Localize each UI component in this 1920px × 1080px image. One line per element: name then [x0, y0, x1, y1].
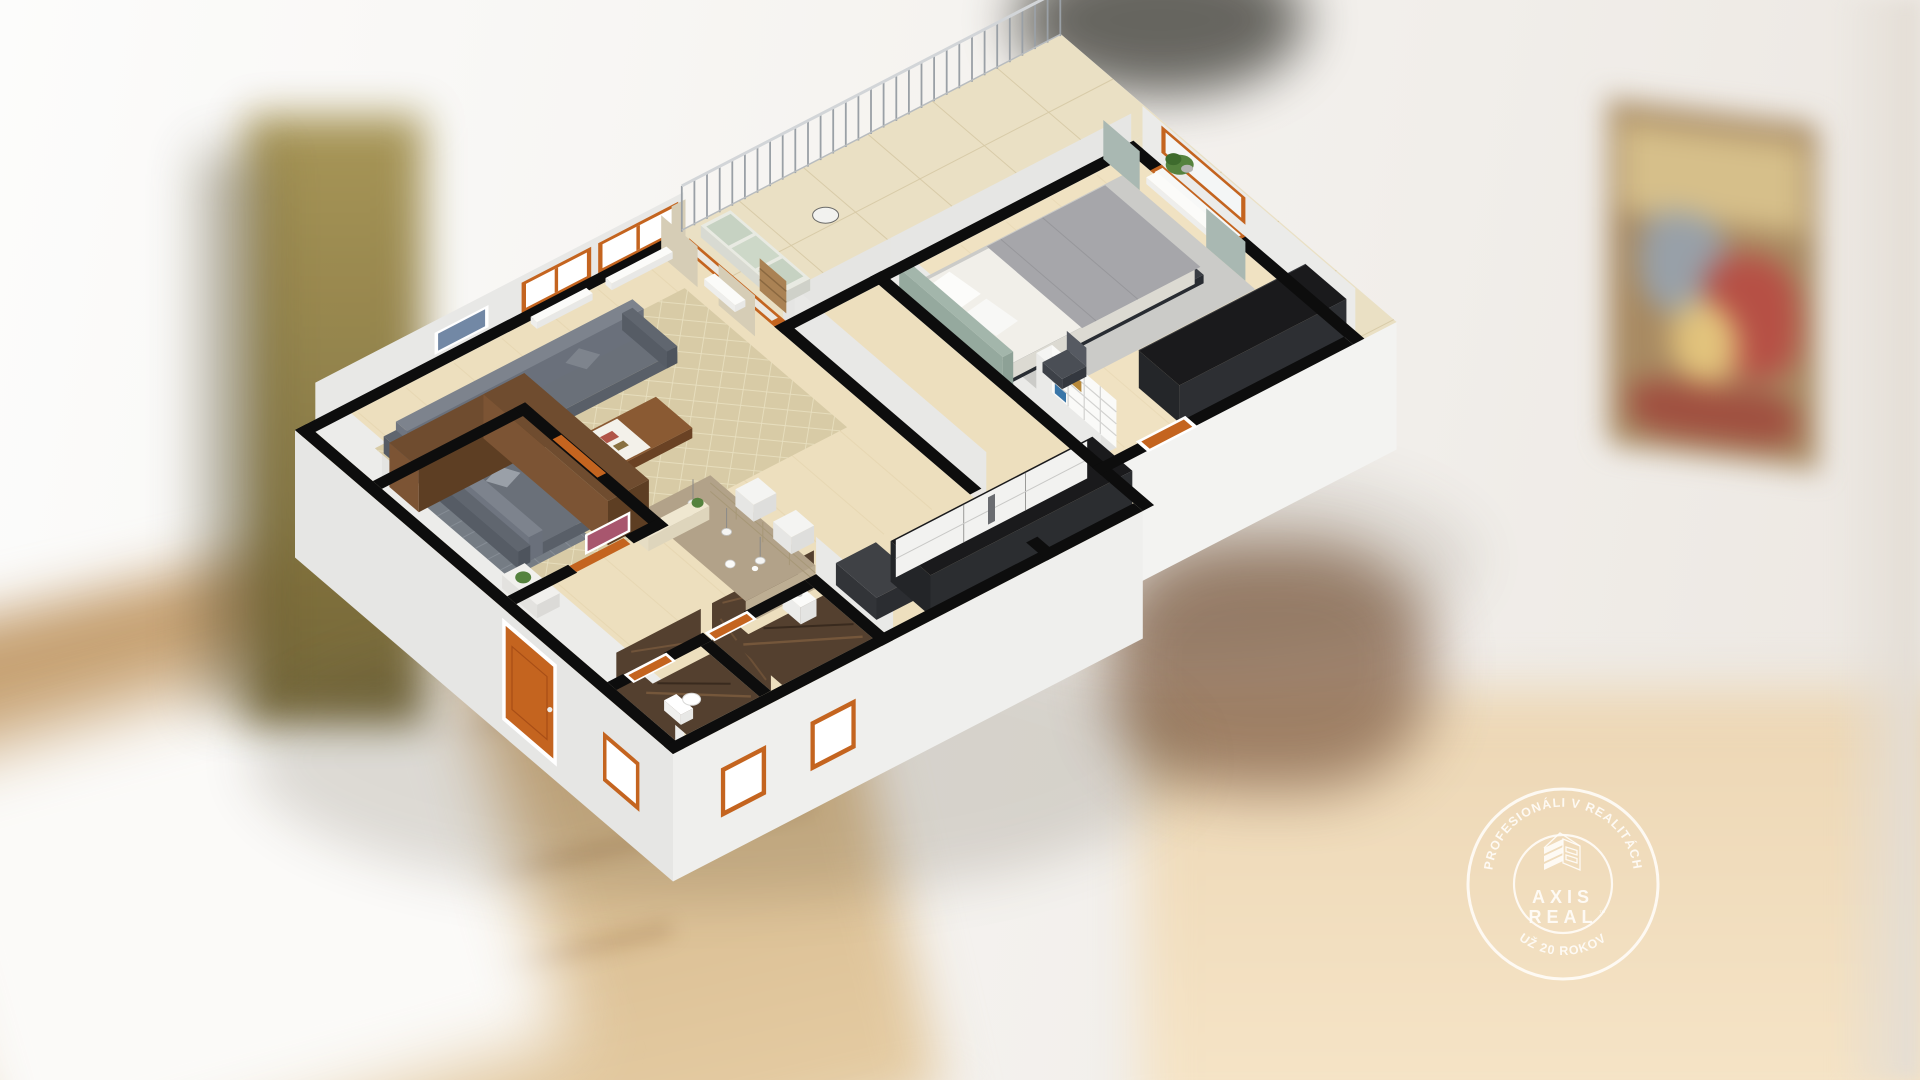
entrance-door-handle [547, 707, 552, 712]
badge-arc-bottom-text: UŽ 20 ROKOV [1517, 931, 1609, 959]
terrace-plant-pot [1181, 165, 1193, 173]
terrace-side-table [813, 207, 839, 223]
living-plant [515, 571, 531, 583]
hall-plant-sprig [692, 498, 704, 508]
badge-brand-axis: AXIS [1532, 887, 1594, 907]
terrace-plant-inner [1165, 153, 1181, 165]
cup [752, 566, 758, 571]
logo-floor-line [1566, 855, 1577, 863]
kettle [725, 560, 735, 568]
living-curtain [672, 199, 686, 250]
toilet-bowl [683, 693, 701, 705]
badge-trademark: ™ [1599, 910, 1606, 917]
badge-brand-real: REAL [1529, 907, 1598, 927]
watermark-badge: PROFESIONÁLI V REALITÁCH UŽ 20 ROKOV AXI… [1463, 784, 1663, 984]
living-window-mullion [555, 267, 558, 293]
real-estate-render: PROFESIONÁLI V REALITÁCH UŽ 20 ROKOV AXI… [0, 0, 1920, 1080]
badge-graphic: PROFESIONÁLI V REALITÁCH UŽ 20 ROKOV AXI… [1463, 784, 1663, 984]
hall-wardrobe-handle [988, 494, 995, 525]
pendant-light [755, 557, 765, 564]
bath-floor-streak [657, 683, 730, 684]
logo-floor-line [1566, 847, 1577, 855]
pendant-light [722, 528, 732, 535]
building-logo-icon [1544, 833, 1580, 870]
living-window-mullion [636, 225, 640, 251]
